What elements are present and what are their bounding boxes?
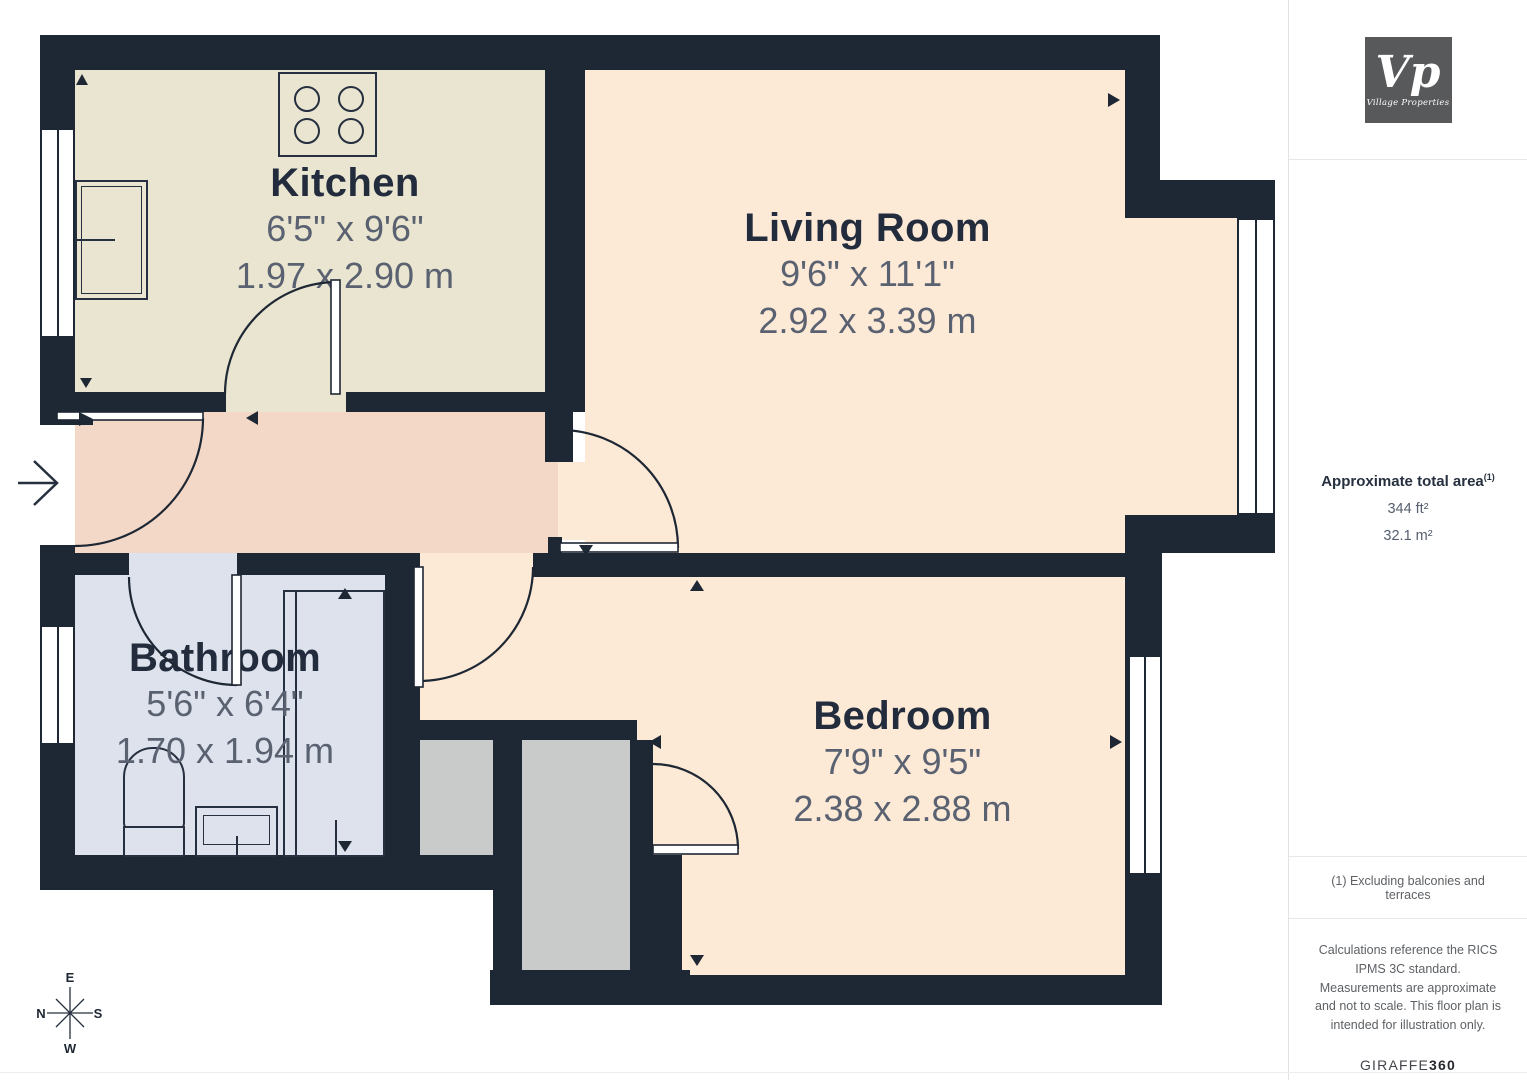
storage-closet <box>420 740 493 855</box>
vestibule-floor <box>419 553 533 725</box>
footnote-section: (1) Excluding balconies and terraces <box>1289 857 1527 919</box>
disclaimer-text: Calculations reference the RICS IPMS 3C … <box>1315 941 1501 1035</box>
living-door-threshold <box>558 462 585 540</box>
toilet-tank <box>123 826 185 857</box>
stove-burner <box>338 118 364 144</box>
compass-south: S <box>94 1006 103 1021</box>
wall-shaft-right-b <box>630 855 682 975</box>
stove-burner <box>294 86 320 112</box>
toilet-bowl <box>123 747 185 831</box>
wall-bedroom-bottom <box>682 975 1160 1005</box>
compass-east: E <box>66 970 75 985</box>
footnote-marker: (1) <box>1484 472 1495 482</box>
bathroom-door-threshold <box>129 553 237 575</box>
window-mullion <box>1255 220 1257 513</box>
bay-window <box>1237 218 1275 515</box>
wall-shaft-right-a <box>630 740 653 855</box>
stove-burner <box>294 118 320 144</box>
provider-suffix: 360 <box>1429 1057 1456 1073</box>
shower <box>283 590 385 857</box>
wall-bathroom-bottom <box>40 855 495 890</box>
provider-name: GIRAFFE <box>1360 1057 1429 1073</box>
total-area-label: Approximate total area <box>1321 473 1484 490</box>
kitchen-unit-handle <box>77 239 115 241</box>
total-area-section: Approximate total area(1) 344 ft² 32.1 m… <box>1289 160 1527 857</box>
hallway-floor <box>40 412 560 553</box>
wall-top <box>40 35 1160 70</box>
compass-north: N <box>36 1006 45 1021</box>
bottom-divider <box>0 1072 1527 1073</box>
footnote-text: (1) Excluding balconies and terraces <box>1307 874 1509 902</box>
kitchen-door-threshold <box>226 392 346 412</box>
total-area-title: Approximate total area(1) <box>1321 472 1495 490</box>
wall-kitchen-bottom-b <box>346 392 545 412</box>
wall-shaft-left <box>493 720 522 1005</box>
kitchen-window <box>40 128 75 338</box>
wall-living-bottom <box>533 553 1160 577</box>
living-room-floor <box>585 70 1125 553</box>
wall-kitchen-living-divider <box>545 35 585 412</box>
wall-kitchen-bottom-a <box>40 392 226 412</box>
entry-opening <box>40 425 75 545</box>
agency-logo: Vp Village Properties <box>1365 37 1452 123</box>
info-sidebar: Vp Village Properties Approximate total … <box>1288 0 1527 1080</box>
kitchen-unit <box>75 180 148 300</box>
wall-living-right-upper <box>1125 70 1160 183</box>
logo-section: Vp Village Properties <box>1289 0 1527 160</box>
total-area-metric: 32.1 m² <box>1383 528 1432 544</box>
shower-screen <box>295 592 297 855</box>
wall-living-door-frame <box>548 537 562 553</box>
window-mullion <box>57 130 59 336</box>
bay-floor <box>1125 218 1240 515</box>
wall-entry-frame <box>57 410 93 425</box>
disclaimer-section: Calculations reference the RICS IPMS 3C … <box>1289 919 1527 1072</box>
window-mullion <box>1144 657 1146 873</box>
sink-drain <box>236 836 238 856</box>
wall-hall-bottom-a <box>40 553 129 575</box>
sink <box>195 806 278 857</box>
wall-bottom-shaft <box>490 970 690 1005</box>
compass-icon: E N S W <box>36 970 102 1056</box>
wall-bay-top <box>1125 180 1275 218</box>
wall-shaft-top <box>493 720 637 740</box>
bedroom-window <box>1128 655 1162 875</box>
stove-burner <box>338 86 364 112</box>
storage-shaft <box>522 740 637 970</box>
stove <box>278 72 377 157</box>
wall-bay-bottom <box>1125 515 1275 553</box>
logo-monogram: Vp <box>1376 51 1441 95</box>
compass-west: W <box>64 1041 77 1056</box>
bathroom-window <box>40 625 75 745</box>
shower-drain-line <box>335 820 337 855</box>
window-mullion <box>57 627 59 743</box>
floorplan-page: Kitchen 6'5" x 9'6" 1.97 x 2.90 m Living… <box>0 0 1527 1080</box>
logo-name: Village Properties <box>1367 98 1450 108</box>
total-area-imperial: 344 ft² <box>1387 501 1428 517</box>
wall-divider-stub <box>545 412 573 462</box>
wall-closet-top <box>413 720 493 740</box>
